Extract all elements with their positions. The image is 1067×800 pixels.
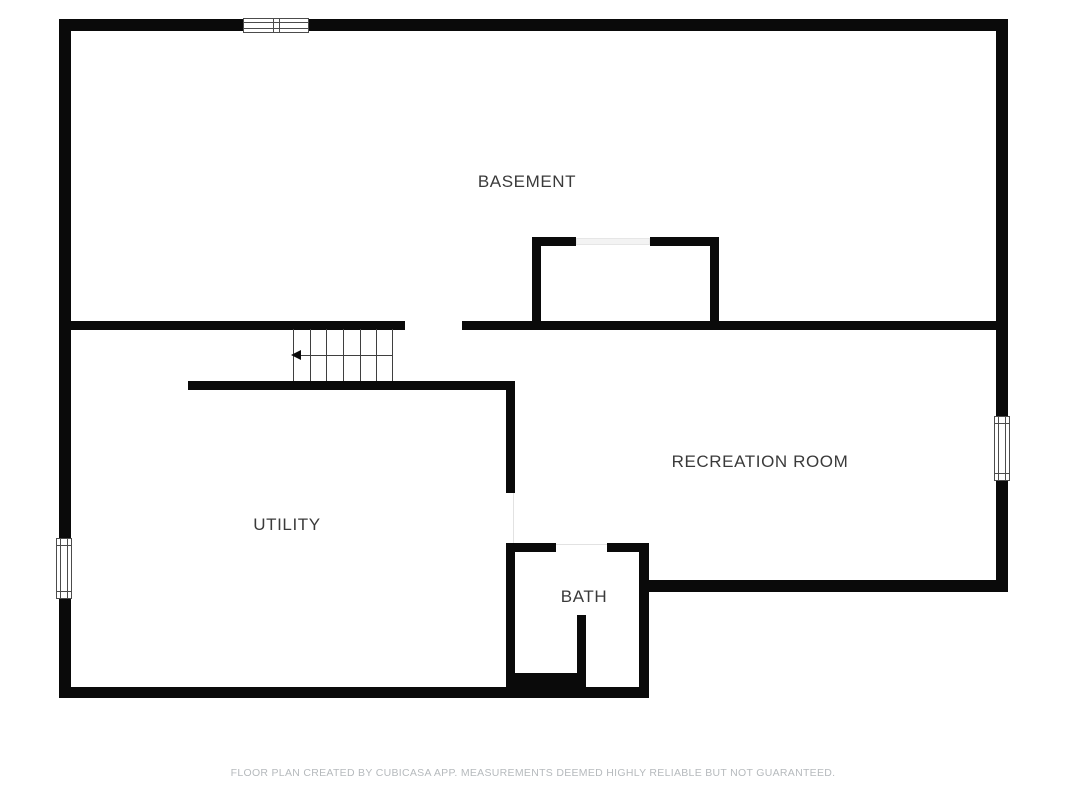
stairs-direction-arrow-icon bbox=[291, 350, 301, 360]
bath-doorway bbox=[556, 544, 607, 545]
window-frame-line bbox=[998, 417, 999, 480]
utility-recreation-divider bbox=[506, 381, 515, 493]
window-mullion bbox=[57, 545, 71, 546]
window-frame-line bbox=[244, 28, 308, 29]
right-wall-window-icon bbox=[994, 416, 1010, 481]
basement-divider-wall-right bbox=[462, 321, 996, 330]
window-frame-line bbox=[1005, 417, 1006, 480]
bath-wall-left bbox=[506, 543, 515, 698]
stair-walk-line bbox=[300, 355, 392, 356]
room-label-bath: BATH bbox=[561, 587, 607, 607]
exterior-wall-top bbox=[59, 19, 1008, 31]
room-label-recreation-room: RECREATION ROOM bbox=[672, 452, 849, 472]
bath-wall-top-left bbox=[515, 543, 556, 552]
stairs bbox=[293, 329, 393, 381]
utility-top-wall bbox=[188, 381, 515, 390]
room-label-basement: BASEMENT bbox=[478, 172, 576, 192]
room-label-utility: UTILITY bbox=[253, 515, 321, 535]
window-mullion bbox=[273, 19, 274, 32]
utility-to-recreation-doorway bbox=[513, 493, 514, 543]
window-mullion bbox=[57, 591, 71, 592]
stairwell-enclosure-wall-top-right bbox=[650, 237, 719, 246]
stairwell-enclosure-wall-left bbox=[532, 237, 541, 321]
window-frame-line bbox=[60, 539, 61, 598]
floorplan-canvas: BASEMENT UTILITY RECREATION ROOM BATH FL… bbox=[0, 0, 1067, 800]
window-mullion bbox=[279, 19, 280, 32]
bath-partition-stub bbox=[577, 615, 586, 698]
left-wall-window-icon bbox=[56, 538, 72, 599]
window-mullion bbox=[995, 423, 1009, 424]
exterior-wall-right bbox=[996, 19, 1008, 592]
window-mullion bbox=[995, 473, 1009, 474]
basement-stairwell-opening bbox=[576, 238, 650, 245]
window-frame-line bbox=[244, 22, 308, 23]
exterior-wall-bottom-right bbox=[648, 580, 1008, 592]
window-frame-line bbox=[67, 539, 68, 598]
stair-tread-line bbox=[392, 329, 393, 381]
top-wall-window-icon bbox=[243, 18, 309, 33]
stairwell-enclosure-wall-top-left bbox=[532, 237, 576, 246]
stairwell-enclosure-wall-right bbox=[710, 237, 719, 321]
footer-disclaimer: FLOOR PLAN CREATED BY CUBICASA APP. MEAS… bbox=[231, 767, 836, 779]
bath-bottom-block bbox=[515, 673, 586, 698]
bath-wall-right bbox=[639, 543, 649, 698]
